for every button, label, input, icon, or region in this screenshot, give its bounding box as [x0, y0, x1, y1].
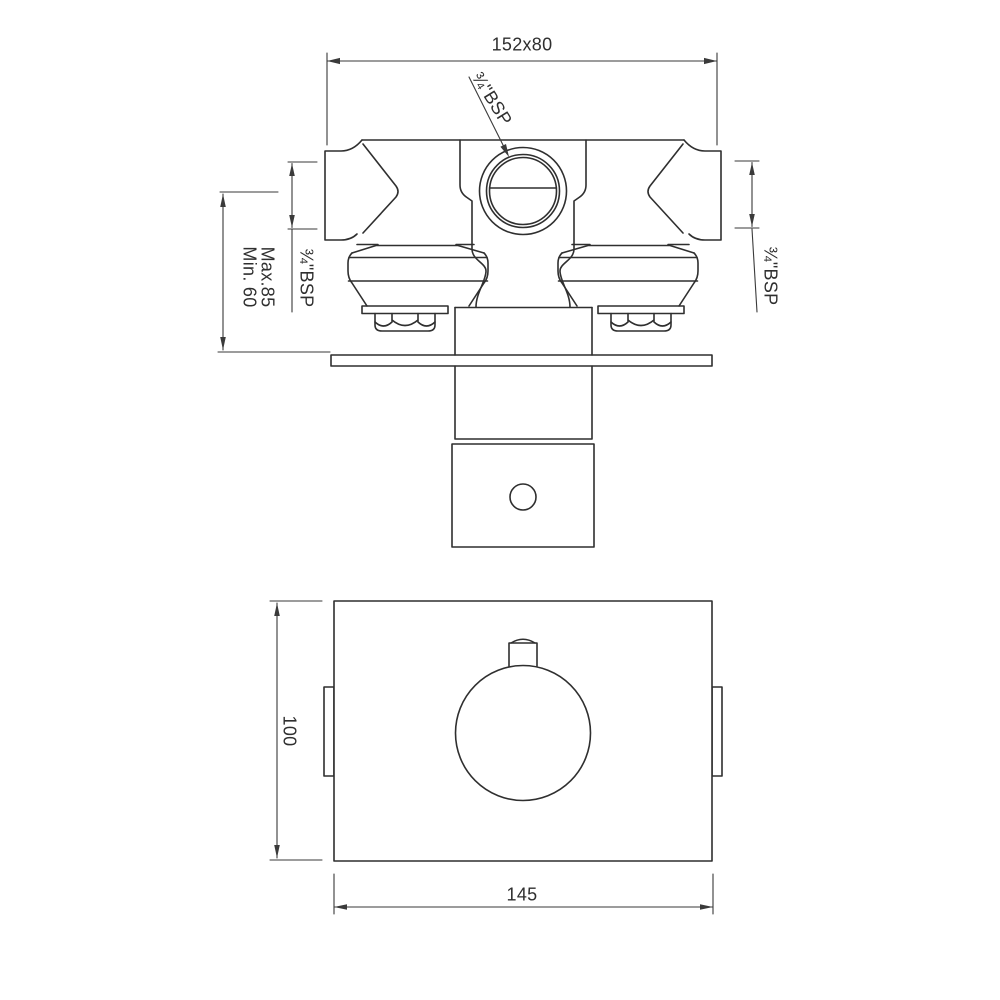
- right-inlet-bsp-label: ¾"BSP: [761, 247, 780, 306]
- left-hex-nut-facets: [375, 314, 435, 327]
- outlet-port-inner-ring: [490, 158, 557, 225]
- left-side-tab: [324, 687, 334, 776]
- right-v-notch: [648, 144, 683, 233]
- right-union-top: [562, 246, 694, 254]
- left-union-top: [352, 246, 484, 254]
- technical-drawing-page: 152x80 ¾"BSP ¾"BSP ¾"BSP Min. 60 Max.85 …: [0, 0, 1000, 1000]
- right-side-tab: [712, 687, 722, 776]
- depth-max-dimension-label: Max.85: [258, 247, 277, 308]
- cartridge-screw-hole: [510, 484, 536, 510]
- left-washer: [362, 306, 448, 314]
- control-knob: [456, 666, 591, 801]
- left-union-left-side: [348, 253, 367, 306]
- right-union-lines: [559, 258, 698, 282]
- overall-width-dimension-label: 152x80: [492, 36, 553, 55]
- right-inlet-block: [684, 140, 721, 240]
- right-union-right-side: [679, 253, 698, 306]
- left-union-lines: [349, 258, 488, 282]
- center-column-left-edge: [460, 140, 486, 307]
- left-hex-nut: [375, 314, 435, 332]
- outlet-port-outer-ring: [480, 148, 567, 235]
- left-v-notch: [363, 144, 398, 233]
- cartridge-block: [452, 444, 594, 547]
- top-view-body: [325, 140, 721, 547]
- right-inlet-leader: [752, 229, 757, 312]
- drawing-linework: [0, 0, 1000, 1000]
- depth-min-dimension-label: Min. 60: [240, 246, 259, 307]
- right-washer: [598, 306, 684, 314]
- plate-width-dimension-label: 145: [507, 886, 538, 905]
- outlet-port-middle-ring: [487, 155, 560, 228]
- wall-flange-plate: [331, 355, 712, 366]
- width-extension-lines: [327, 53, 717, 145]
- right-hex-nut: [611, 314, 671, 332]
- left-inlet-block: [325, 140, 362, 240]
- plate-height-dimension-label: 100: [280, 716, 299, 747]
- right-inlet-ticks: [735, 161, 759, 228]
- front-view-plate: [324, 601, 722, 861]
- stem-sides: [455, 308, 592, 440]
- left-inlet-bsp-label: ¾"BSP: [297, 249, 316, 308]
- center-column-right-edge: [560, 140, 586, 307]
- right-hex-nut-facets: [611, 314, 671, 327]
